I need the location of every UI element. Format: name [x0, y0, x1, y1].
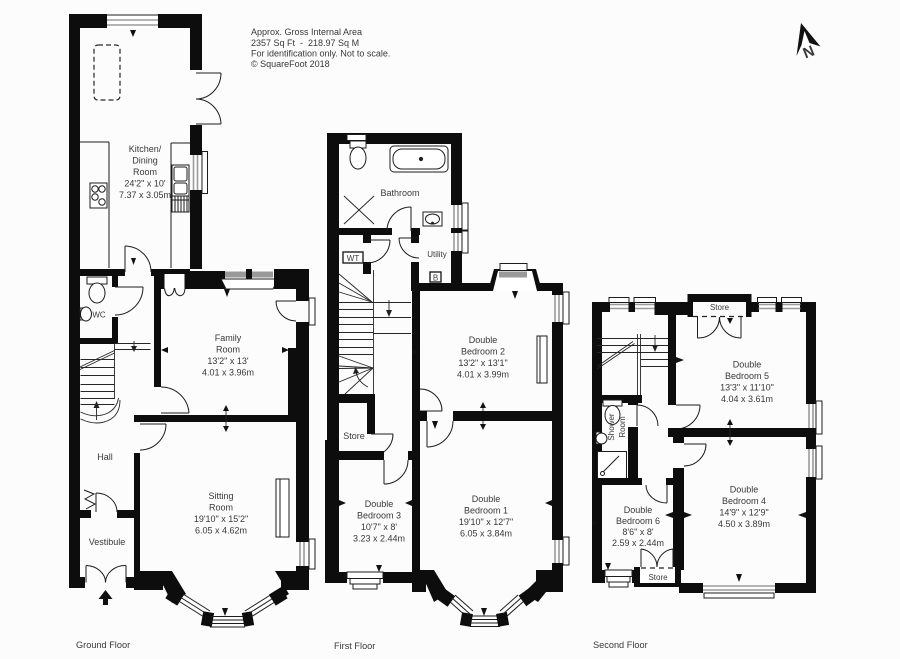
svg-text:Room: Room — [216, 345, 240, 355]
svg-text:3.23 x 2.44m: 3.23 x 2.44m — [353, 534, 405, 544]
svg-text:Double: Double — [624, 505, 653, 515]
svg-text:4.50 x 3.89m: 4.50 x 3.89m — [718, 519, 770, 529]
svg-text:Room: Room — [618, 416, 627, 438]
svg-text:Bedroom 5: Bedroom 5 — [725, 371, 769, 381]
svg-text:Double: Double — [365, 499, 394, 509]
svg-text:B: B — [433, 274, 438, 283]
svg-text:19'10" x 12'7": 19'10" x 12'7" — [459, 517, 513, 527]
svg-text:19'10" x 15'2": 19'10" x 15'2" — [194, 514, 248, 524]
svg-text:6.05 x 3.84m: 6.05 x 3.84m — [460, 529, 512, 539]
svg-text:Bedroom 6: Bedroom 6 — [616, 516, 660, 526]
svg-text:Second Floor: Second Floor — [593, 640, 648, 650]
svg-text:WC: WC — [92, 311, 106, 320]
svg-text:4.04 x 3.61m: 4.04 x 3.61m — [721, 394, 773, 404]
svg-text:Approx. Gross Internal Area: Approx. Gross Internal Area — [251, 27, 362, 37]
svg-text:Store: Store — [648, 573, 668, 582]
svg-text:10'7" x 8': 10'7" x 8' — [361, 522, 397, 532]
svg-text:6.05 x 4.62m: 6.05 x 4.62m — [195, 526, 247, 536]
svg-text:Utility: Utility — [427, 250, 447, 259]
svg-text:Bedroom 1: Bedroom 1 — [464, 506, 508, 516]
svg-text:2357 Sq Ft - 218.97 Sq M: 2357 Sq Ft - 218.97 Sq M — [251, 38, 359, 48]
svg-text:4.01 x 3.96m: 4.01 x 3.96m — [202, 368, 254, 378]
svg-text:Room: Room — [133, 167, 157, 177]
svg-text:Double: Double — [472, 494, 501, 504]
svg-text:Double: Double — [469, 335, 498, 345]
svg-text:First Floor: First Floor — [334, 641, 375, 651]
svg-text:4.01 x 3.99m: 4.01 x 3.99m — [457, 370, 509, 380]
svg-text:14'9" x 12'9": 14'9" x 12'9" — [719, 508, 768, 518]
svg-text:For identification only. Not t: For identification only. Not to scale. — [251, 49, 390, 59]
svg-text:24'2" x 10': 24'2" x 10' — [124, 179, 165, 189]
svg-text:WT: WT — [347, 254, 360, 263]
svg-text:Sitting: Sitting — [208, 491, 233, 501]
svg-text:Family: Family — [215, 333, 242, 343]
svg-text:Bedroom 2: Bedroom 2 — [461, 347, 505, 357]
svg-text:Shower: Shower — [607, 413, 616, 440]
svg-text:Double: Double — [733, 360, 762, 370]
svg-text:Kitchen/: Kitchen/ — [129, 144, 162, 154]
svg-text:7.37 x 3.05m: 7.37 x 3.05m — [119, 190, 171, 200]
svg-text:13'3" x 11'10": 13'3" x 11'10" — [720, 383, 774, 393]
svg-text:Hall: Hall — [97, 452, 113, 462]
svg-text:Bathroom: Bathroom — [380, 188, 419, 198]
svg-text:Vestibule: Vestibule — [89, 537, 126, 547]
svg-text:2.59 x 2.44m: 2.59 x 2.44m — [612, 538, 664, 548]
svg-text:Bedroom 3: Bedroom 3 — [357, 511, 401, 521]
svg-text:Store: Store — [343, 431, 365, 441]
svg-text:Ground Floor: Ground Floor — [76, 640, 130, 650]
svg-text:13'2" x 13'1": 13'2" x 13'1" — [458, 358, 507, 368]
svg-text:Room: Room — [209, 503, 233, 513]
svg-text:8'6" x 8': 8'6" x 8' — [622, 527, 653, 537]
svg-text:Dining: Dining — [132, 156, 158, 166]
svg-text:13'2" x 13': 13'2" x 13' — [207, 356, 248, 366]
svg-text:Store: Store — [710, 303, 730, 312]
svg-text:Bedroom 4: Bedroom 4 — [722, 496, 766, 506]
svg-text:Double: Double — [730, 485, 759, 495]
svg-text:© SquareFoot 2018: © SquareFoot 2018 — [251, 59, 330, 69]
